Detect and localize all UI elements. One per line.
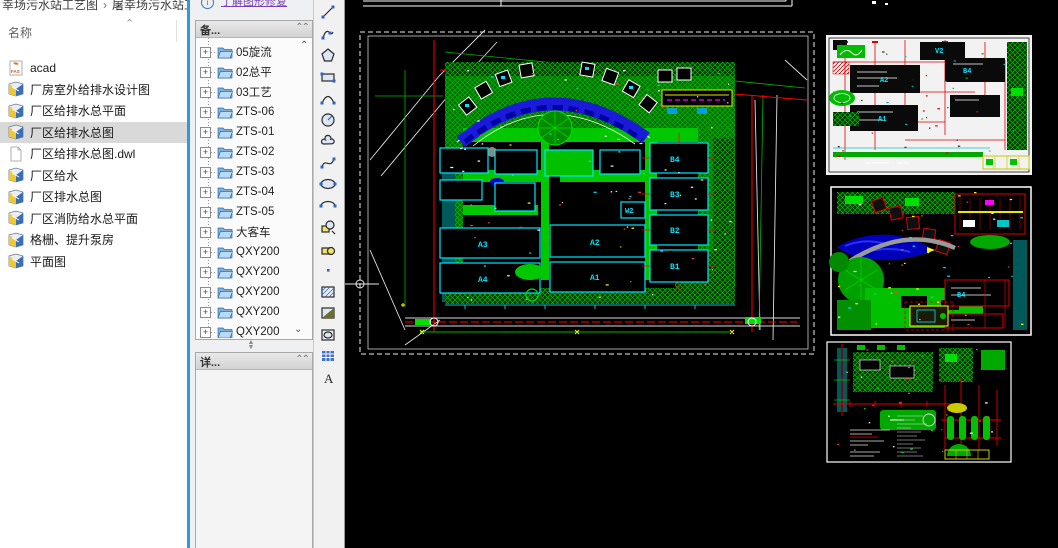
tree-item[interactable]: +ZTS-01 xyxy=(200,122,274,142)
details-panel-title: 详... xyxy=(200,357,220,369)
building-label: A4 xyxy=(478,276,488,285)
mtext-tool-button[interactable]: A xyxy=(317,368,339,388)
ellipse-arc-tool-button[interactable] xyxy=(317,196,339,216)
details-panel: 详... ⌃⌃ xyxy=(195,352,313,548)
file-row[interactable]: 厂区给排水总图 xyxy=(0,122,187,143)
line-tool-button[interactable] xyxy=(317,2,339,22)
building-label: A2 xyxy=(590,239,600,248)
tree-item[interactable]: +QXY200 xyxy=(200,282,279,302)
sub-drawing-1[interactable]: A2 A1 V2 B4 xyxy=(826,35,1032,175)
learn-recovery-link[interactable]: 了解图形修复 xyxy=(221,0,287,8)
tree-item[interactable]: +QXY200 xyxy=(200,302,279,322)
mtext-icon: A xyxy=(319,369,337,387)
file-name: 厂区消防给水总平面 xyxy=(30,210,138,227)
file-name: 平面图 xyxy=(30,253,66,270)
polygon-icon xyxy=(319,46,337,64)
details-panel-header[interactable]: 详... ⌃⌃ xyxy=(196,353,312,370)
tree-stub xyxy=(211,192,216,193)
central-tree xyxy=(538,111,572,145)
revcloud-icon xyxy=(319,132,337,150)
ellipse-tool-button[interactable] xyxy=(317,174,339,194)
survey-marker xyxy=(345,280,379,288)
line-icon xyxy=(319,3,337,21)
arc-icon xyxy=(319,89,337,107)
dwg-file-icon xyxy=(8,232,24,248)
tree-item-label: 02总平 xyxy=(236,64,272,80)
file-row[interactable]: 厂区给水 xyxy=(0,165,187,186)
expand-plus-icon[interactable]: + xyxy=(200,307,211,318)
tree-stub xyxy=(211,72,216,73)
building-label: B4 xyxy=(963,68,971,76)
tree-item-label: QXY200 xyxy=(236,286,279,298)
dwg-file-icon xyxy=(8,189,24,205)
dwg-file-icon xyxy=(8,103,24,119)
tree-item[interactable]: +03工艺 xyxy=(200,82,272,102)
tree-item-label: 05旋流 xyxy=(236,44,272,60)
r2-cyan-band xyxy=(1013,240,1027,330)
tree-item-label: ZTS-06 xyxy=(236,106,274,118)
tree-item-label: QXY200 xyxy=(236,326,279,338)
scroll-up-icon[interactable]: ⌃ xyxy=(300,40,308,51)
column-divider[interactable] xyxy=(176,20,177,42)
gradient-tool-button[interactable] xyxy=(317,303,339,323)
collapse-chevron-icon[interactable]: ⌃⌃ xyxy=(295,354,308,365)
tree-stub xyxy=(211,232,216,233)
sub-drawing-3[interactable] xyxy=(827,342,1011,462)
ellipse-arc-icon xyxy=(319,197,337,215)
file-row[interactable]: 厂房室外给排水设计图 xyxy=(0,79,187,100)
tree-item[interactable]: +QXY200 xyxy=(200,322,279,338)
expand-plus-icon[interactable]: + xyxy=(200,87,211,98)
point-tool-button[interactable] xyxy=(317,260,339,280)
cropped-top-frame xyxy=(363,0,888,6)
tree-stub xyxy=(211,152,216,153)
folder-icon xyxy=(217,86,233,99)
expand-plus-icon[interactable]: + xyxy=(200,147,211,158)
expand-plus-icon[interactable]: + xyxy=(200,67,211,78)
dwg-file-icon xyxy=(8,253,24,269)
tree-item-label: ZTS-04 xyxy=(236,186,274,198)
region-tool-button[interactable] xyxy=(317,325,339,345)
bottom-lines xyxy=(405,305,800,334)
insert-block-tool-button[interactable] xyxy=(317,217,339,237)
file-name: 厂区给排水总平面 xyxy=(30,102,126,119)
expand-plus-icon[interactable]: + xyxy=(200,267,211,278)
tree-item[interactable]: +ZTS-05 xyxy=(200,202,274,222)
tree-item[interactable]: +QXY200 xyxy=(200,242,279,262)
panel-splitter[interactable]: ▲▼ xyxy=(245,340,257,351)
file-name: 厂区给排水总图 xyxy=(30,124,114,141)
tree-stub xyxy=(211,312,216,313)
backup-tree: ⌃ ⌄ +05旋流+02总平+03工艺+ZTS-06+ZTS-01+ZTS-02… xyxy=(196,38,312,338)
tree-stub xyxy=(211,332,216,333)
svg-text:FAS: FAS xyxy=(11,69,20,74)
file-name: 厂区排水总图 xyxy=(30,188,102,205)
file-row[interactable]: 厂区给排水总平面 xyxy=(0,100,187,121)
tree-item-label: ZTS-01 xyxy=(236,126,274,138)
file-name: 厂区给水 xyxy=(30,167,78,184)
sub-drawing-2[interactable]: B4 xyxy=(829,187,1031,335)
file-name: 厂区给排水总图.dwl xyxy=(30,145,135,162)
region-icon xyxy=(319,326,337,344)
tree-stub xyxy=(211,112,216,113)
building-label: B1 xyxy=(670,263,680,272)
scroll-down-icon[interactable]: ⌄ xyxy=(294,324,302,335)
expand-plus-icon[interactable]: + xyxy=(200,327,211,338)
file-row[interactable]: 平面图 xyxy=(0,251,187,272)
hatch-icon xyxy=(319,283,337,301)
expand-plus-icon[interactable]: + xyxy=(200,47,211,58)
expand-plus-icon[interactable]: + xyxy=(200,247,211,258)
insert-block-icon xyxy=(319,218,337,236)
make-block-tool-button[interactable] xyxy=(317,239,339,259)
rectangle-icon xyxy=(319,68,337,86)
screen: 幸场污水站工艺图›屠幸场污水站工艺图 名称 ⌃ FASacad厂房室外给排水设计… xyxy=(0,0,1058,548)
tree-item-label: ZTS-03 xyxy=(236,166,274,178)
folder-icon xyxy=(217,106,233,119)
folder-icon xyxy=(217,246,233,259)
tree-item[interactable]: +ZTS-03 xyxy=(200,162,274,182)
expand-plus-icon[interactable]: + xyxy=(200,127,211,138)
dwg-file-icon xyxy=(8,124,24,140)
dwg-file-icon xyxy=(8,167,24,183)
building-label: V2 xyxy=(935,48,943,56)
tree-stub xyxy=(211,292,216,293)
tree-stub xyxy=(211,132,216,133)
column-header-name[interactable]: 名称 xyxy=(8,24,32,41)
rectangle-tool-button[interactable] xyxy=(317,67,339,87)
r2-yellow-box xyxy=(905,302,953,330)
info-icon: i xyxy=(201,0,214,9)
file-row[interactable]: 厂区给排水总图.dwl xyxy=(0,143,187,164)
expand-plus-icon[interactable]: + xyxy=(200,287,211,298)
backup-panel-title: 备... xyxy=(200,25,220,37)
building-label: B2 xyxy=(670,227,680,236)
expand-plus-icon[interactable]: + xyxy=(200,107,211,118)
tree-item[interactable]: +ZTS-02 xyxy=(200,142,274,162)
spline-tool-button[interactable] xyxy=(317,153,339,173)
tree-item-label: 大客车 xyxy=(236,224,271,240)
tree-item-label: ZTS-05 xyxy=(236,206,274,218)
folder-icon xyxy=(217,146,233,159)
tree-item[interactable]: +ZTS-04 xyxy=(200,182,274,202)
folder-icon xyxy=(217,226,233,239)
r2-bottom-buildings xyxy=(945,280,1009,328)
folder-icon xyxy=(217,186,233,199)
breadcrumb-item[interactable]: 幸场污水站工艺图 xyxy=(0,0,100,14)
expand-plus-icon[interactable]: + xyxy=(200,227,211,238)
circle-tool-button[interactable] xyxy=(317,110,339,130)
polyline-icon xyxy=(319,25,337,43)
drawing-recovery-palette: i 了解图形修复 备... ⌃⌃ ⌃ ⌄ +05旋流+02总平+03工艺+ZTS… xyxy=(187,0,313,548)
folder-icon xyxy=(217,66,233,79)
table-icon xyxy=(319,347,337,365)
recovery-help-row: i 了解图形修复 xyxy=(201,0,287,9)
file-name: 格栅、提升泵房 xyxy=(30,231,114,248)
ellipse-icon xyxy=(319,175,337,193)
polygon-tool-button[interactable] xyxy=(317,45,339,65)
tree-item-label: QXY200 xyxy=(236,306,279,318)
backup-files-panel: 备... ⌃⌃ ⌃ ⌄ +05旋流+02总平+03工艺+ZTS-06+ZTS-0… xyxy=(195,20,313,340)
tree-stub xyxy=(211,252,216,253)
tree-stub xyxy=(211,52,216,53)
table-tool-button[interactable] xyxy=(317,346,339,366)
spline-icon xyxy=(319,154,337,172)
file-row[interactable]: 厂区排水总图 xyxy=(0,186,187,207)
tree-item[interactable]: +02总平 xyxy=(200,62,272,82)
revcloud-tool-button[interactable] xyxy=(317,131,339,151)
draw-toolbar: A xyxy=(313,0,345,548)
building-label: B4 xyxy=(957,292,965,300)
tree-stub xyxy=(211,272,216,273)
building-label: W2 xyxy=(625,208,633,216)
file-explorer-pane: 幸场污水站工艺图›屠幸场污水站工艺图 名称 ⌃ FASacad厂房室外给排水设计… xyxy=(0,0,187,548)
plain-file-icon xyxy=(8,146,24,162)
sort-ascending-icon[interactable]: ⌃ xyxy=(125,17,134,30)
breadcrumb-item[interactable]: 屠幸场污水站工艺图 xyxy=(110,0,187,14)
building-label: A1 xyxy=(878,116,886,124)
collapse-chevron-icon[interactable]: ⌃⌃ xyxy=(295,22,308,33)
hatch-tool-button[interactable] xyxy=(317,282,339,302)
tree-item[interactable]: +05旋流 xyxy=(200,42,272,62)
circle-icon xyxy=(319,111,337,129)
building-label: B4 xyxy=(670,156,680,165)
dwg-file-icon xyxy=(8,210,24,226)
backup-panel-header[interactable]: 备... ⌃⌃ xyxy=(196,21,312,38)
tree-item-label: QXY200 xyxy=(236,246,279,258)
expand-plus-icon[interactable]: + xyxy=(200,167,211,178)
arc-tool-button[interactable] xyxy=(317,88,339,108)
tree-item[interactable]: +QXY200 xyxy=(200,262,279,282)
building-label: A1 xyxy=(590,274,600,283)
folder-icon xyxy=(217,126,233,139)
building-label: A3 xyxy=(478,241,488,250)
tree-item[interactable]: +ZTS-06 xyxy=(200,102,274,122)
file-row[interactable]: 厂区消防给水总平面 xyxy=(0,208,187,229)
make-block-icon xyxy=(319,240,337,258)
palette-edge xyxy=(187,0,190,548)
file-name: acad xyxy=(30,61,56,75)
tree-item-label: ZTS-02 xyxy=(236,146,274,158)
folder-icon xyxy=(217,166,233,179)
folder-icon xyxy=(217,46,233,59)
polyline-tool-button[interactable] xyxy=(317,24,339,44)
tree-item[interactable]: +大客车 xyxy=(200,222,271,242)
building-label: B3 xyxy=(670,191,680,200)
tree-stub xyxy=(211,172,216,173)
file-row[interactable]: FASacad xyxy=(0,57,187,78)
expand-plus-icon[interactable]: + xyxy=(200,207,211,218)
dwg-file-icon xyxy=(8,81,24,97)
file-name: 厂房室外给排水设计图 xyxy=(30,81,150,98)
gradient-icon xyxy=(319,304,337,322)
tree-item-label: QXY200 xyxy=(236,266,279,278)
breadcrumb-separator-icon: › xyxy=(100,0,110,14)
folder-icon xyxy=(217,306,233,319)
folder-icon xyxy=(217,206,233,219)
building-label: A2 xyxy=(880,77,888,85)
point-icon xyxy=(319,261,337,279)
folder-icon xyxy=(217,326,233,339)
tree-stub xyxy=(211,212,216,213)
cad-canvas[interactable]: A3 A4 A2 A1 B4 B3 B2 B1 W2 xyxy=(345,0,1058,548)
tree-stub xyxy=(211,92,216,93)
tree-item-label: 03工艺 xyxy=(236,84,272,100)
expand-plus-icon[interactable]: + xyxy=(200,187,211,198)
folder-icon xyxy=(217,286,233,299)
folder-icon xyxy=(217,266,233,279)
fas-file-icon: FAS xyxy=(8,60,24,76)
breadcrumb: 幸场污水站工艺图›屠幸场污水站工艺图 xyxy=(0,0,187,14)
main-drawing[interactable]: A3 A4 A2 A1 B4 B3 B2 B1 W2 xyxy=(360,30,814,354)
svg-text:A: A xyxy=(324,371,334,386)
file-row[interactable]: 格栅、提升泵房 xyxy=(0,229,187,250)
